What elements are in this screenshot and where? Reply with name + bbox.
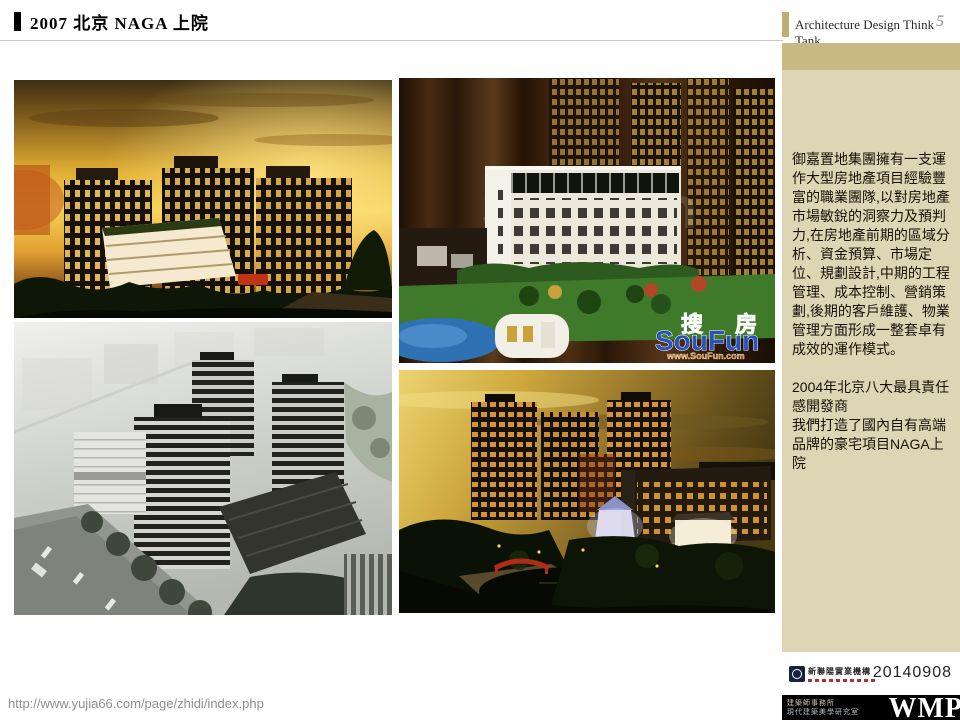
source-url: http://www.yujia66.com/page/zhidi/index.… xyxy=(8,696,264,711)
sunset-render-graphic xyxy=(14,80,392,318)
sidebar-text-block: 御嘉置地集團擁有一支運作大型房地產項目經驗豐富的職業團隊,以對房地產市場敏銳的洞… xyxy=(792,150,952,473)
sunset-render-image xyxy=(14,80,392,318)
date-stamp: 20140908 xyxy=(873,664,952,682)
footer-white-strip: 新聯陽實業機構 20140908 xyxy=(782,652,960,695)
wmp-logo: WMP xyxy=(888,695,960,720)
studio-line-1: 建築師事務所 xyxy=(787,699,859,708)
sidebar-brand-line: 我們打造了國內自有高端品牌的豪宅項目NAGA上院 xyxy=(792,416,952,473)
model-photo-image: SouFun xyxy=(399,78,775,363)
think-tank-accent-bar xyxy=(782,12,789,37)
bw-aerial-render-image xyxy=(14,322,392,615)
slide-page: 2007 北京 NAGA 上院 Architecture Design Thin… xyxy=(0,0,960,720)
page-title: 2007 北京 NAGA 上院 xyxy=(30,9,209,34)
night-render-graphic xyxy=(399,370,775,613)
sidebar-award-line: 2004年北京八大最具責任感開發商 xyxy=(792,378,952,416)
header-divider xyxy=(0,40,783,41)
studio-credit: 建築師事務所 現代建築美學研究室 xyxy=(787,699,859,717)
company-logo-icon xyxy=(789,666,805,682)
sidebar-intro-paragraph: 御嘉置地集團擁有一支運作大型房地產項目經驗豐富的職業團隊,以對房地產市場敏銳的洞… xyxy=(792,150,952,359)
studio-line-2: 現代建築美學研究室 xyxy=(787,708,859,717)
soufun-url: www.SouFun.com xyxy=(666,351,745,361)
sidebar-top-band xyxy=(782,43,960,70)
company-logo-text-block: 新聯陽實業機構 xyxy=(808,666,878,682)
title-accent-bar xyxy=(14,12,21,31)
footer-black-strip: 建築師事務所 現代建築美學研究室 WMP xyxy=(782,695,960,720)
model-photo-graphic: SouFun xyxy=(399,78,775,363)
company-logo: 新聯陽實業機構 xyxy=(789,666,878,682)
page-number: 5 xyxy=(936,13,944,31)
night-render-image xyxy=(399,370,775,613)
bw-aerial-render-graphic xyxy=(14,322,392,615)
company-name: 新聯陽實業機構 xyxy=(808,666,878,677)
company-logo-dots xyxy=(808,679,878,682)
